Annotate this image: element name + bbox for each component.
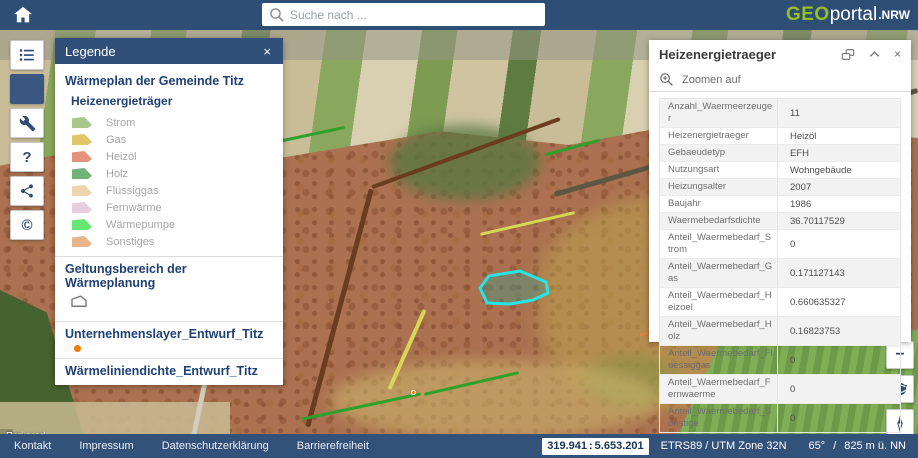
logo-geo: GEO [786, 4, 830, 26]
legend-item-label: Gas [106, 134, 126, 146]
coordinate-y[interactable]: 5.653.201 [594, 440, 645, 452]
polygon-outline-icon [69, 294, 89, 308]
footer-bar: Kontakt Impressum Datenschutzerklärung B… [0, 434, 918, 458]
legend-item: Flüssiggas [72, 182, 273, 199]
tool-button-column: ? © [10, 40, 44, 244]
color-swatch [72, 134, 92, 145]
help-button[interactable]: ? [10, 142, 44, 172]
feature-panel-close-button[interactable]: × [894, 47, 901, 61]
legend-item: Sonstiges [72, 233, 273, 250]
value-separator: / [833, 440, 836, 452]
legend-item-label: Heizöl [106, 151, 137, 163]
legend-header[interactable]: Legende × [55, 38, 283, 64]
legend-group-title: Wärmeplan der Gemeinde Titz [65, 74, 273, 88]
share-icon [19, 183, 35, 199]
color-swatch [72, 202, 92, 213]
selected-feature-highlight[interactable] [470, 268, 560, 314]
legend-item-label: Holz [106, 168, 128, 180]
geoportal-logo[interactable]: GEOportal.NRW [786, 0, 910, 30]
attr-value: 1986 [778, 196, 900, 212]
footer-link-impressum[interactable]: Impressum [79, 440, 133, 452]
color-swatch [72, 168, 92, 179]
table-row: Baujahr1986 [660, 196, 900, 213]
feature-panel-title: Heizenergietraeger [659, 47, 827, 62]
geoportal-app: Powered by Esri GEOportal.NRW [0, 0, 918, 458]
attr-value: 0 [778, 346, 900, 374]
legend-body: Wärmeplan der Gemeinde Titz Heizenergiet… [55, 64, 283, 385]
legend-item-label: Sonstiges [106, 236, 154, 248]
attr-label: Gebaeudetyp [660, 145, 778, 161]
table-row: Anteil_Waermebedarf_Sonstige0 [660, 404, 900, 432]
chevron-up-icon [869, 50, 880, 58]
legend-item-label: Fernwärme [106, 202, 162, 214]
coordinate-display[interactable]: 319.941 : 5.653.201 [542, 438, 648, 455]
legend-item-label: Strom [106, 117, 135, 129]
legend-sublayer-title: Wärmeliniendichte [71, 384, 273, 385]
coordinate-x[interactable]: 319.941 [546, 440, 588, 452]
table-row: Anteil_Waermebedarf_Heizoel0.660635327 [660, 288, 900, 317]
legend-item: Wärmepumpe [72, 216, 273, 233]
table-row: GebaeudetypEFH [660, 145, 900, 162]
table-row: NutzungsartWohngebäude [660, 162, 900, 179]
wrench-icon [19, 115, 36, 132]
attr-value: EFH [778, 145, 900, 161]
legend-section: Unternehmenslayer_Entwurf_Titz [55, 321, 283, 352]
legend-subgroup-title: Heizenergieträger [71, 94, 273, 108]
share-button[interactable] [10, 176, 44, 206]
legend-panel: Legende × Wärmeplan der Gemeinde Titz He… [55, 38, 283, 385]
attr-value: Wohngebäude [778, 162, 900, 178]
table-row: Waermebedarfsdichte36.70117529 [660, 213, 900, 230]
zoom-to-button[interactable]: Zoomen auf [649, 68, 911, 92]
collapse-button[interactable] [869, 50, 880, 58]
attribute-table: Anzahl_Waermeerzeuger11 Heizenergietraeg… [659, 98, 901, 433]
attr-label: Anteil_Waermebedarf_Heizoel [660, 288, 778, 316]
legend-close-button[interactable]: × [261, 44, 273, 59]
point-symbol-icon [74, 345, 81, 352]
table-row: Anteil_Waermebedarf_Gas0.171127143 [660, 259, 900, 288]
search-input[interactable] [262, 3, 545, 26]
search-box [262, 3, 545, 26]
active-tool-button[interactable] [10, 74, 44, 104]
feature-panel-header: Heizenergietraeger × [649, 40, 911, 68]
attr-value: 0 [778, 375, 900, 403]
footer-links: Kontakt Impressum Datenschutzerklärung B… [14, 440, 369, 452]
legend-item: Holz [72, 165, 273, 182]
dock-button[interactable] [841, 48, 855, 61]
attr-label: Anteil_Waermebedarf_Sonstige [660, 404, 778, 432]
color-swatch [72, 236, 92, 247]
elevation-value: 825 m ü. NN [844, 440, 906, 452]
color-swatch [72, 219, 92, 230]
legend-item: Gas [72, 131, 273, 148]
footer-link-kontakt[interactable]: Kontakt [14, 440, 51, 452]
attr-label: Anteil_Waermebedarf_Strom [660, 230, 778, 258]
footer-link-datenschutz[interactable]: Datenschutzerklärung [162, 440, 269, 452]
attr-label: Anteil_Waermebedarf_Holz [660, 317, 778, 345]
attr-value: 0 [778, 404, 900, 432]
map-company-point [411, 390, 416, 395]
attr-label: Heizenergietraeger [660, 128, 778, 144]
attr-label: Anteil_Waermebedarf_Fernwaerme [660, 375, 778, 403]
attr-label: Anteil_Waermebedarf_Fluessiggas [660, 346, 778, 374]
table-row: Anteil_Waermebedarf_Fluessiggas0 [660, 346, 900, 375]
table-row: Heizungsalter2007 [660, 179, 900, 196]
attr-label: Anzahl_Waermeerzeuger [660, 99, 778, 127]
legend-section: Wärmeliniendichte_Entwurf_Titz Wärmelini… [55, 358, 283, 385]
logo-portal: portal [830, 4, 878, 26]
legend-button[interactable] [10, 40, 44, 70]
legend-group-title: Geltungsbereich der Wärmeplanung [65, 262, 273, 290]
legend-item: Strom [72, 114, 273, 131]
home-icon [13, 6, 33, 24]
zoom-to-icon [659, 72, 674, 87]
legend-section: Geltungsbereich der Wärmeplanung [55, 256, 283, 315]
attr-label: Waermebedarfsdichte [660, 213, 778, 229]
map-pale-area-overlay [330, 360, 660, 434]
legend-item-label: Wärmepumpe [106, 219, 175, 231]
table-row: Anzahl_Waermeerzeuger11 [660, 99, 900, 128]
question-mark-icon: ? [22, 149, 31, 166]
logo-nrw: .NRW [878, 8, 910, 22]
tools-button[interactable] [10, 108, 44, 138]
legend-group-title: Unternehmenslayer_Entwurf_Titz [65, 327, 273, 341]
attr-value: 0 [778, 230, 900, 258]
footer-link-barrierefreiheit[interactable]: Barrierefreiheit [297, 440, 369, 452]
color-swatch [72, 117, 92, 128]
attr-value: Heizöl [778, 128, 900, 144]
attr-value: 2007 [778, 179, 900, 195]
attr-value: 11 [778, 99, 900, 127]
color-swatch [72, 151, 92, 162]
table-row: Anteil_Waermebedarf_Fernwaerme0 [660, 375, 900, 404]
color-swatch [72, 185, 92, 196]
tilt-value: 65° [809, 440, 826, 452]
attr-label: Nutzungsart [660, 162, 778, 178]
attr-label: Heizungsalter [660, 179, 778, 195]
home-button[interactable] [10, 3, 36, 27]
zoom-to-label: Zoomen auf [682, 74, 741, 86]
attr-value: 36.70117529 [778, 213, 900, 229]
attr-value: 0.16823753 [778, 317, 900, 345]
dock-icon [841, 48, 855, 61]
copyright-button[interactable]: © [10, 210, 44, 240]
legend-list-icon [18, 46, 36, 64]
legend-title: Legende [65, 44, 261, 59]
legend-item-label: Flüssiggas [106, 185, 159, 197]
copyright-icon: © [21, 217, 32, 234]
legend-group-title: Wärmeliniendichte_Entwurf_Titz [65, 364, 273, 378]
attr-label: Baujahr [660, 196, 778, 212]
attr-value: 0.660635327 [778, 288, 900, 316]
table-row: Anteil_Waermebedarf_Strom0 [660, 230, 900, 259]
table-row: HeizenergietraegerHeizöl [660, 128, 900, 145]
attr-label: Anteil_Waermebedarf_Gas [660, 259, 778, 287]
feature-panel: Heizenergietraeger × Zoomen auf [649, 40, 911, 342]
legend-item: Fernwärme [72, 199, 273, 216]
top-bar: GEOportal.NRW [0, 0, 918, 30]
attr-value: 0.171127143 [778, 259, 900, 287]
crs-label: ETRS89 / UTM Zone 32N [661, 440, 787, 452]
legend-item: Heizöl [72, 148, 273, 165]
table-row: Anteil_Waermebedarf_Holz0.16823753 [660, 317, 900, 346]
